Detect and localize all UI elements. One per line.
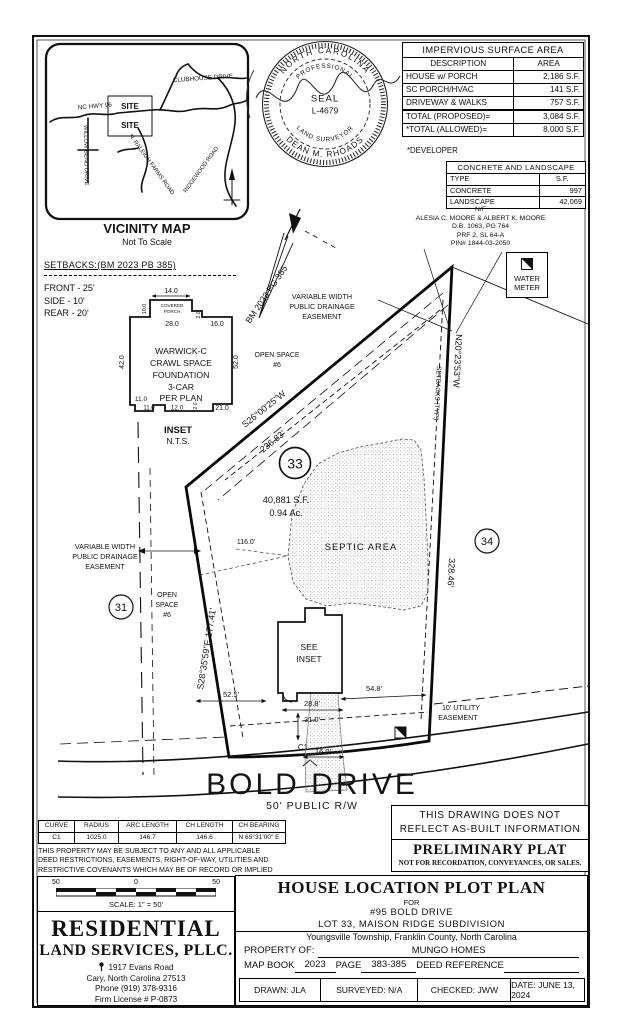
road-rw-label: 50' PUBLIC R/W <box>266 800 358 812</box>
surveyor-seal: NORTH CAROLINA DEAN M. RHOADS PROFESSION… <box>247 42 400 167</box>
lot-area-acres: 0.94 Ac. <box>269 508 302 518</box>
dim-28-8: 28.8' <box>304 699 321 708</box>
seal-land-surveyor-label: LAND SURVEYOR <box>295 125 355 144</box>
curve-table: CURVE RADIUS ARC LENGTH CH LENGTH CH BEA… <box>38 820 286 844</box>
road-label-raleigh-farms: N. RALEIGH FARMS ROAD <box>127 134 175 196</box>
plan-township: Youngsville Township, Franklin County, N… <box>236 932 587 943</box>
bearing-right-label: N20°23'53"W <box>451 334 464 388</box>
inset-dim-42: 42.0 <box>119 355 126 369</box>
inset-dim-11: 11.0 <box>143 406 155 412</box>
scale-bar-graphic <box>56 888 216 897</box>
inset-dim-2: 2.0 <box>193 402 199 409</box>
seal-professional-label: PROFESSIONAL <box>295 63 355 81</box>
dim-54-8: 54.8' <box>366 684 383 693</box>
vicinity-map: SITE SITE NC HWY 96 CLUBHOUSE DRIVE WILL… <box>46 44 248 247</box>
utility-easement-label: EASEMENT <box>438 713 478 722</box>
curve-cell: C1 <box>39 833 75 844</box>
curve-col-header: CH LENGTH <box>177 821 233 833</box>
page-label: PAGE <box>336 959 362 973</box>
table-cell: HOUSE w/ PORCH <box>403 71 514 83</box>
house-model-label: PER PLAN <box>160 393 203 403</box>
distance-top-label: 236.83' <box>258 428 287 454</box>
note-line: REFLECT AS-BUILT INFORMATION <box>392 823 588 837</box>
adjacent-lot-31: 31 <box>115 602 127 614</box>
water-meter-icon <box>521 258 533 270</box>
inset-dim-11: 11.0 <box>135 396 148 403</box>
setback-rear: REAR - 20' <box>44 307 239 320</box>
column-header: TYPE <box>447 174 540 185</box>
drainage-easement-label: VARIABLE WIDTH <box>75 542 135 551</box>
scale-number: 50 <box>52 879 60 886</box>
drainage-easement-label: PUBLIC DRAINAGE <box>289 302 355 311</box>
column-header: AREA <box>514 58 583 70</box>
curve-tag-c1: C1 <box>298 743 309 752</box>
column-header: DESCRIPTION <box>403 58 514 70</box>
adjoiner-line: PRF 2, SL 64-A <box>393 232 568 241</box>
table-cell: CONCRETE <box>447 186 540 197</box>
firm-license: Firm License # P-0873 <box>38 995 234 1006</box>
drainage-easement-label: EASEMENT <box>302 312 342 321</box>
inset-dim-28: 28.0 <box>165 321 179 328</box>
svg-text:LAND SURVEYOR: LAND SURVEYOR <box>295 125 355 144</box>
water-meter-legend: WATER METER <box>506 252 548 298</box>
seal-state-label: NORTH CAROLINA <box>277 45 372 76</box>
adjoiner-line: PIN# 1844-03-2050 <box>393 240 568 249</box>
plot-plan-sheet: SITE SITE NC HWY 96 CLUBHOUSE DRIVE WILL… <box>0 0 622 1024</box>
inset-dim-16: 16.0 <box>210 321 224 328</box>
property-of-label: PROPERTY OF: <box>244 944 314 958</box>
owner-name: MUNGO HOMES <box>318 944 579 958</box>
benchmark-label: BM 2023 PG 385 <box>243 263 289 325</box>
dim-31-0: 31.0' <box>304 715 321 724</box>
adjoiner-line: D.B. 1063, PG 764 <box>393 223 568 232</box>
page-value: 383-385 <box>361 958 416 973</box>
table-cell: DRIVEWAY & WALKS <box>403 97 514 109</box>
adjoiner-owner-block: N/F ALESIA C. MOORE & ALBERT K. MOORE D.… <box>393 206 568 249</box>
road-label-ridgewood: RIDGEWOOD ROAD <box>183 146 220 194</box>
road-name: BOLD DRIVE <box>206 768 418 801</box>
dim-52-5: 52.5' <box>223 690 240 699</box>
firm-name: RESIDENTIAL <box>38 916 234 942</box>
curve-cell: 146.7 <box>119 833 177 844</box>
divider <box>44 275 236 276</box>
impervious-surface-table: IMPERVIOUS SURFACE AREA DESCRIPTIONAREA … <box>402 42 584 137</box>
water-meter-symbol <box>395 727 406 738</box>
notes-boxes: THIS DRAWING DOES NOT REFLECT AS-BUILT I… <box>391 805 589 872</box>
firm-address-line: Cary, North Carolina 27513 <box>38 974 234 985</box>
developer-footnote: *DEVELOPER <box>407 146 458 155</box>
adjoiner-line: N/F <box>393 206 568 215</box>
property-disclaimer: THIS PROPERTY MAY BE SUBJECT TO ANY AND … <box>38 847 292 875</box>
setbacks-block: SETBACKS:(BM 2023 PB 385) FRONT - 25' SI… <box>44 260 239 320</box>
firm-address: 1917 Evans Road <box>108 963 173 972</box>
drainage-easement-label: EASEMENT <box>85 562 125 571</box>
svg-text:PROFESSIONAL: PROFESSIONAL <box>295 63 355 81</box>
adjoiner-line: ALESIA C. MOORE & ALBERT K. MOORE <box>393 215 568 224</box>
title-block: HOUSE LOCATION PLOT PLAN FOR #95 BOLD DR… <box>235 875 588 1006</box>
table-cell: 757 S.F. <box>514 97 583 109</box>
curve-cell: 1025.0 <box>75 833 119 844</box>
map-book-value: 2023 <box>295 958 336 973</box>
plan-address: #95 BOLD DRIVE <box>236 907 587 919</box>
open-space-label: OPEN <box>157 592 177 599</box>
vicinity-title: VICINITY MAP <box>103 221 190 236</box>
curve-cell: N 65°31'00" E <box>233 833 285 844</box>
curve-col-header: CURVE <box>39 821 75 833</box>
checked-by-cell: CHECKED: JWW <box>417 978 511 1002</box>
table-cell: 141 S.F. <box>514 84 583 96</box>
property-of-row: PROPERTY OF: MUNGO HOMES <box>244 944 579 958</box>
drainage-easement-label: PUBLIC DRAINAGE <box>72 552 138 561</box>
disclaimer-line: RESTRICTIVE COVENANTS WHICH MAY BE OF RE… <box>38 866 292 875</box>
firm-name: LAND SERVICES, PLLC. <box>38 942 234 960</box>
house-model-label: CRAWL SPACE <box>150 358 212 368</box>
curve-col-header: CH BEARING <box>233 821 285 833</box>
table-cell: 2,186 S.F. <box>514 71 583 83</box>
plan-for-label: FOR <box>236 898 587 907</box>
road-label-willow-bend: WILLOW BEND DRIVE <box>82 125 89 186</box>
dim-116-0: 116.0' <box>237 539 255 546</box>
site-label: SITE <box>121 121 139 130</box>
scale-number: 50 <box>212 879 220 886</box>
north-arrow <box>285 209 336 248</box>
deed-reference-label: DEED REFERENCE <box>416 959 504 973</box>
column-header: S.F. <box>540 174 585 185</box>
table-title: CONCRETE AND LANDSCAPE <box>447 162 585 174</box>
drawn-by-cell: DRAWN: JLA <box>239 978 321 1002</box>
firm-block: RESIDENTIAL LAND SERVICES, PLLC. 1917 Ev… <box>37 911 235 1006</box>
curve-col-header: ARC LENGTH <box>119 821 177 833</box>
distance-right-label: 328.46' <box>445 558 457 588</box>
open-space-number: #6 <box>273 362 281 369</box>
open-space-label: OPEN SPACE <box>255 352 300 359</box>
table-cell: 997 <box>540 186 585 197</box>
table-title: IMPERVIOUS SURFACE AREA <box>403 43 583 58</box>
house-model-label: FOUNDATION <box>153 370 210 380</box>
septic-area-label: SEPTIC AREA <box>325 541 397 552</box>
road-label-clubhouse: CLUBHOUSE DRIVE <box>173 73 234 84</box>
table-cell: *TOTAL (ALLOWED)= <box>403 124 514 136</box>
deed-reference-value <box>504 972 579 973</box>
inset-caption: INSET <box>164 425 192 436</box>
setback-side: SIDE - 10' <box>44 295 239 308</box>
table-cell: TOTAL (PROPOSED)= <box>403 111 514 123</box>
disclaimer-line: DEED RESTRICTIONS, EASEMENTS, RIGHT-OF-W… <box>38 856 292 865</box>
lot-number: 33 <box>287 456 303 472</box>
road-label-nc-hwy-96: NC HWY 96 <box>78 101 113 111</box>
note-line: THIS DRAWING DOES NOT <box>392 809 588 823</box>
curve-col-header: RADIUS <box>75 821 119 833</box>
inset-dim-52: 52.0 <box>233 355 240 369</box>
setbacks-typ-label: SETBACKS (TYP.) <box>432 366 442 421</box>
firm-logo-icon <box>98 962 105 971</box>
table-cell: SC PORCH/HVAC <box>403 84 514 96</box>
vicinity-subtitle: Not To Scale <box>122 237 172 247</box>
curve-cell: 146.6 <box>177 833 233 844</box>
map-book-label: MAP BOOK <box>244 959 295 973</box>
date-cell: DATE: JUNE 13, 2024 <box>510 978 585 1002</box>
adjacent-lot-34: 34 <box>481 536 493 548</box>
inset-dim-21: 21.0 <box>215 405 229 412</box>
as-built-note: THIS DRAWING DOES NOT REFLECT AS-BUILT I… <box>392 806 588 840</box>
house-model-label: WARWICK-C <box>155 346 207 356</box>
disclaimer-line: THIS PROPERTY MAY BE SUBJECT TO ANY AND … <box>38 847 292 856</box>
preliminary-title: PRELIMINARY PLAT <box>392 842 588 859</box>
setback-front: FRONT - 25' <box>44 282 239 295</box>
site-label: SITE <box>121 102 139 111</box>
scale-number: 0 <box>134 879 138 886</box>
svg-text:NORTH CAROLINA: NORTH CAROLINA <box>277 45 372 76</box>
utility-easement-label: 10' UTILITY <box>442 703 480 712</box>
legend-label: METER <box>507 284 547 293</box>
setbacks-title: SETBACKS:(BM 2023 PB 385) <box>44 260 239 270</box>
scale-label: SCALE: 1" = 50' <box>38 900 234 909</box>
firm-address-line: 1917 Evans Road <box>38 962 234 974</box>
see-inset-label: SEE <box>300 642 317 652</box>
plan-lot: LOT 33, MAISON RIDGE SUBDIVISION <box>236 919 587 933</box>
bearing-left-label: S28°35'59"E 177.41' <box>195 607 218 690</box>
see-inset-label: INSET <box>296 654 322 664</box>
vicinity-roads <box>50 64 247 206</box>
map-book-row: MAP BOOK 2023 PAGE 383-385 DEED REFERENC… <box>244 958 579 973</box>
preliminary-plat-note: PRELIMINARY PLAT NOT FOR RECORDATION, CO… <box>392 840 588 871</box>
drainage-easement-label: VARIABLE WIDTH <box>292 292 352 301</box>
preliminary-subtitle: NOT FOR RECORDATION, CONVEYANCES, OR SAL… <box>392 859 588 868</box>
table-cell: 8,000 S.F. <box>514 124 583 136</box>
seal-license-number: L-4679 <box>312 106 339 116</box>
surveyed-by-cell: SURVEYED: N/A <box>320 978 419 1002</box>
plan-title: HOUSE LOCATION PLOT PLAN <box>236 878 587 898</box>
inset-caption-nts: N.T.S. <box>166 436 189 446</box>
open-space-number: #6 <box>163 612 171 619</box>
house-model-label: 3-CAR <box>168 382 194 392</box>
seal-center-label: SEAL <box>311 94 339 105</box>
title-block-cells: DRAWN: JLA SURVEYED: N/A CHECKED: JWW DA… <box>239 978 584 1002</box>
dim-16-0: 16.0' <box>315 747 332 756</box>
table-cell: 3,084 S.F. <box>514 111 583 123</box>
concrete-landscape-table: CONCRETE AND LANDSCAPE TYPES.F. CONCRETE… <box>446 161 586 209</box>
firm-phone: Phone (919) 378-9316 <box>38 984 234 995</box>
scale-bar-block: 50 0 50 SCALE: 1" = 50' <box>37 876 235 912</box>
lot-area-sf: 40,881 S.F. <box>263 495 309 505</box>
inset-dim-12: 12.0 <box>171 405 184 412</box>
open-space-label: SPACE <box>155 602 179 609</box>
